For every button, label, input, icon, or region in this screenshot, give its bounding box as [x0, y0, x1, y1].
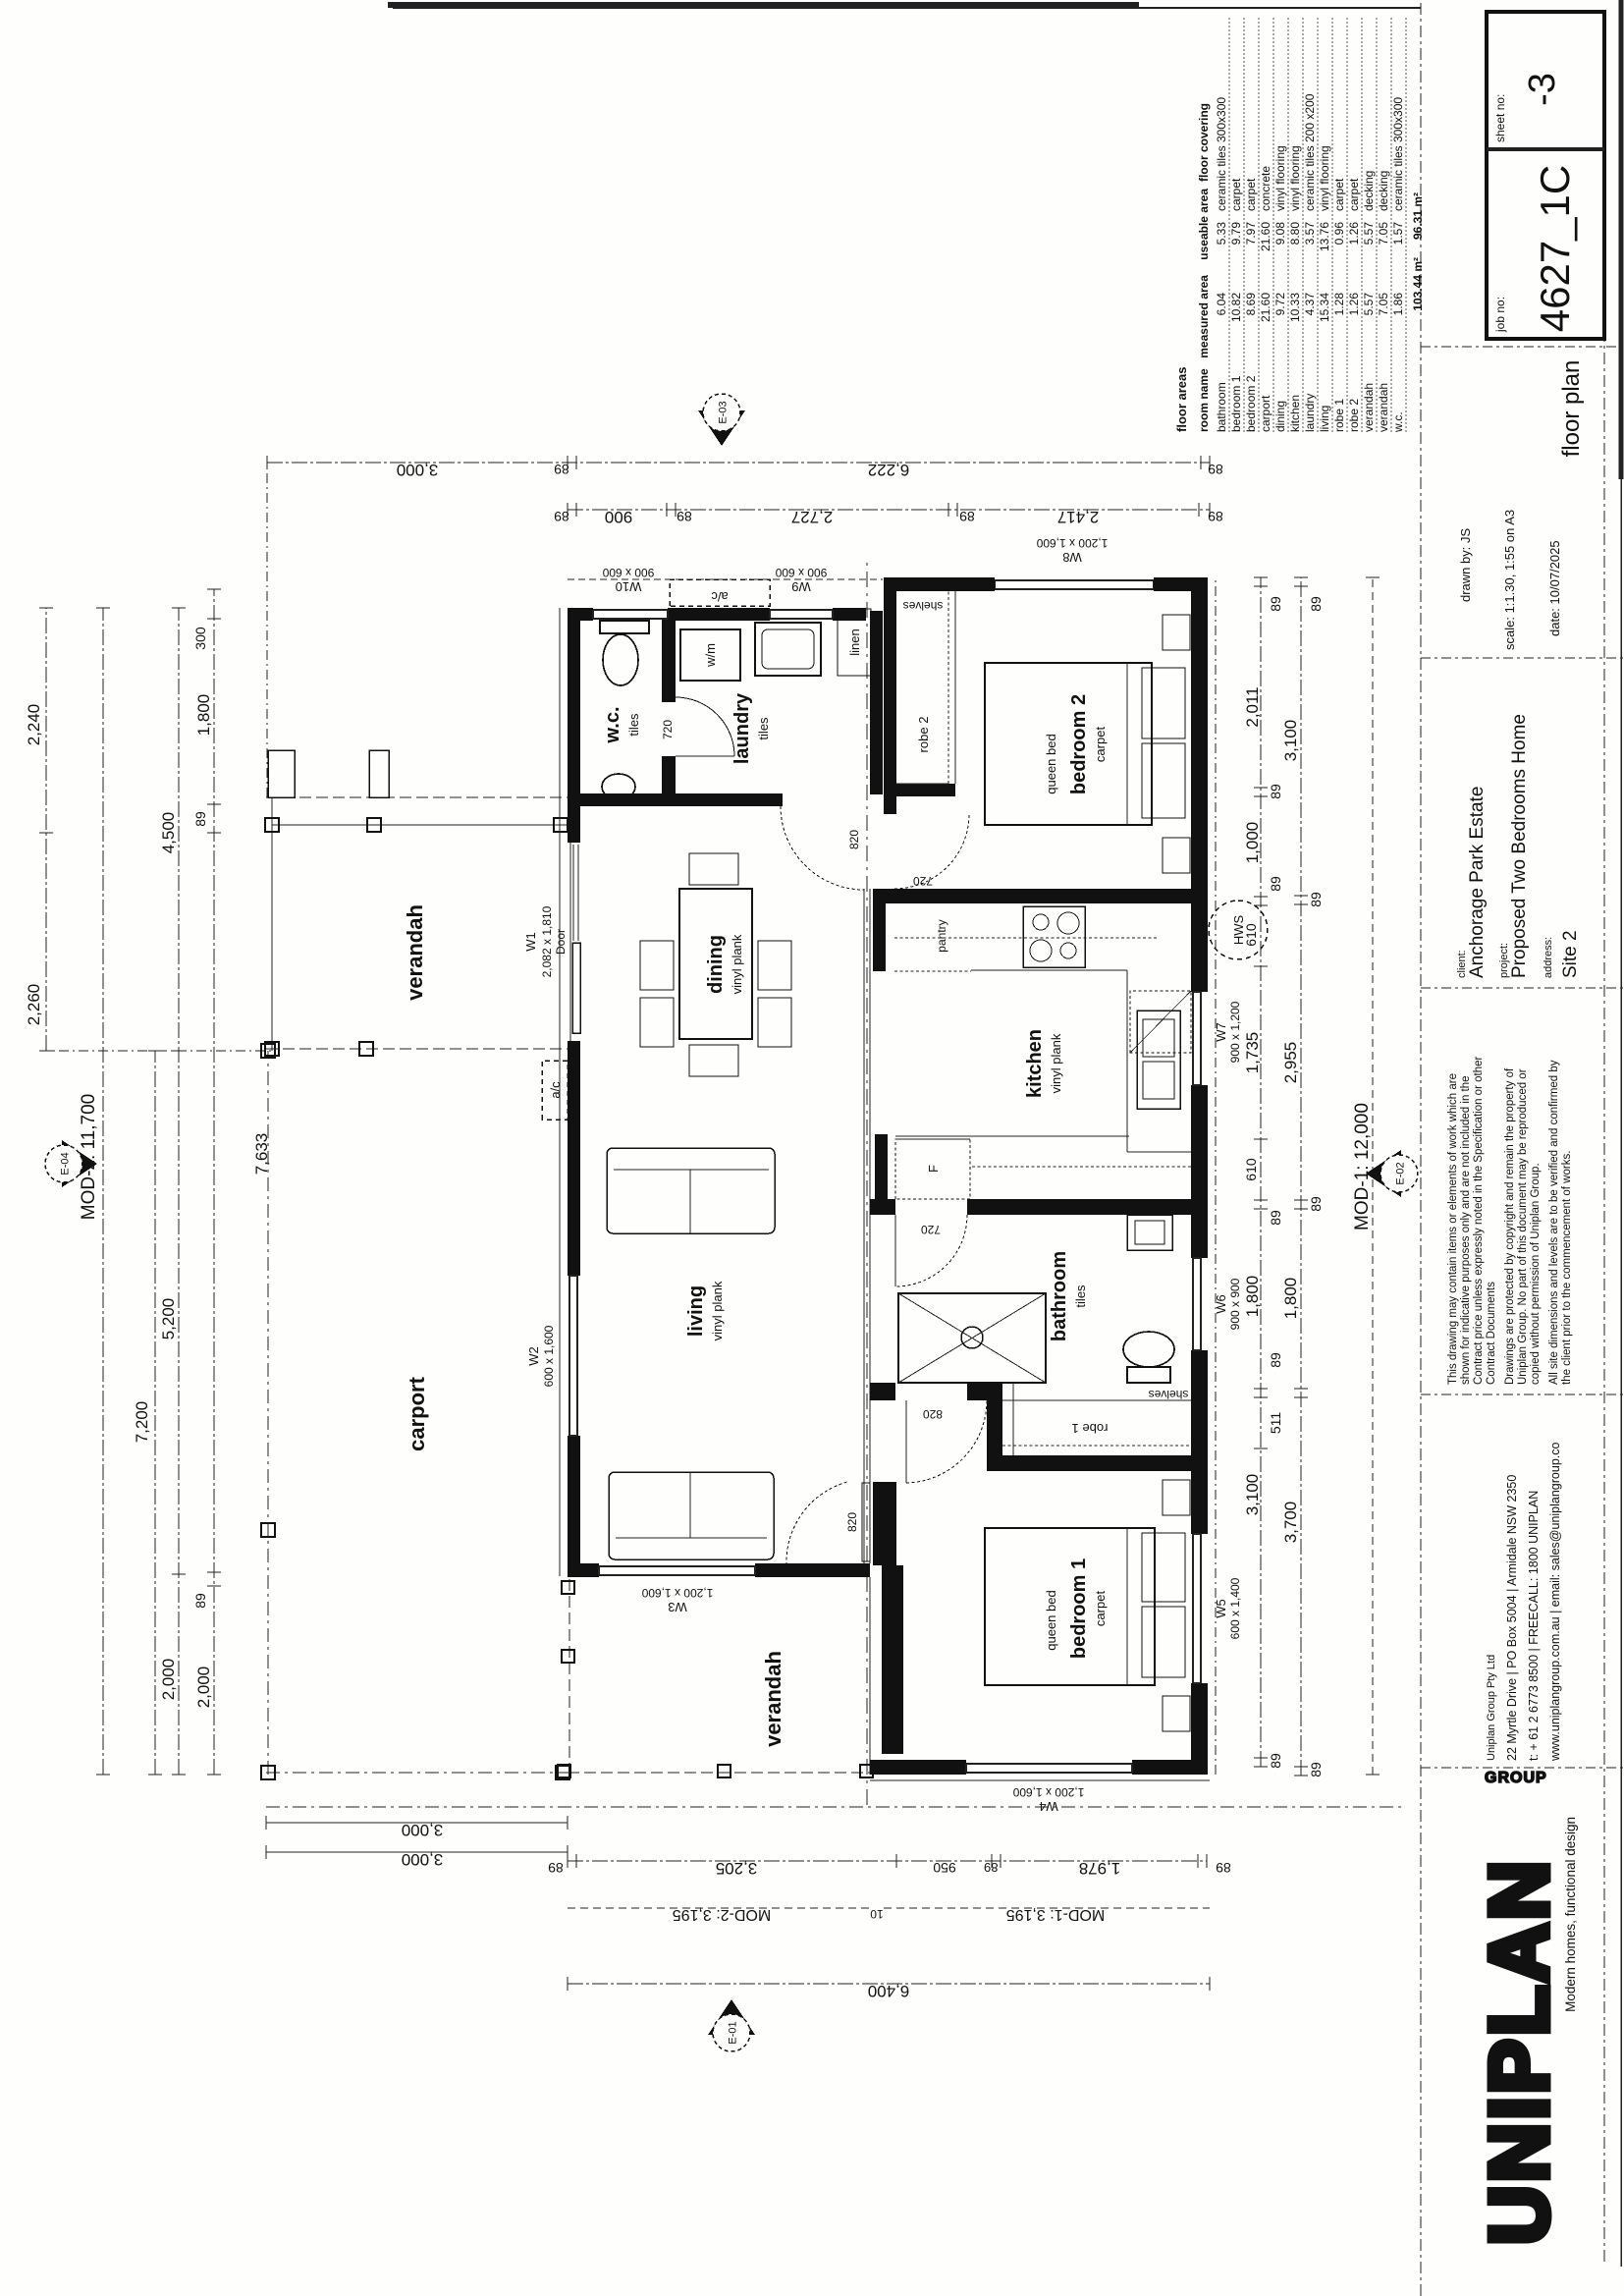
svg-text:5,200: 5,200 [159, 1298, 178, 1340]
svg-text:900 x 600: 900 x 600 [602, 566, 654, 579]
svg-text:Door: Door [554, 929, 568, 955]
svg-text:a/c: a/c [711, 589, 729, 604]
svg-text:89: 89 [1268, 876, 1283, 892]
svg-text:9.72: 9.72 [1273, 293, 1287, 316]
svg-text:carpet: carpet [1093, 727, 1108, 763]
svg-text:15.34: 15.34 [1318, 293, 1331, 322]
svg-text:the client prior to the commen: the client prior to the commencement of … [1561, 1151, 1573, 1385]
svg-text:89: 89 [1268, 596, 1283, 612]
svg-text:720: 720 [913, 874, 933, 888]
svg-text:W3: W3 [668, 1600, 687, 1614]
svg-text:floor plan: floor plan [1558, 360, 1585, 458]
svg-text:This drawing may contain items: This drawing may contain items or elemen… [1447, 1073, 1459, 1385]
svg-text:2,727: 2,727 [791, 508, 834, 526]
svg-text:w/m: w/m [703, 643, 718, 668]
svg-text:bedroom 2: bedroom 2 [1244, 375, 1258, 432]
svg-text:3,100: 3,100 [1281, 720, 1300, 762]
svg-text:1.26: 1.26 [1347, 222, 1361, 246]
svg-text:3,000: 3,000 [397, 461, 439, 479]
svg-text:1.26: 1.26 [1347, 293, 1361, 316]
svg-text:shown for indicative purposes: shown for indicative purposes only and a… [1460, 1075, 1472, 1385]
svg-text:1.57: 1.57 [1391, 222, 1405, 246]
svg-text:carpet: carpet [1244, 178, 1258, 211]
svg-text:laundry: laundry [731, 692, 753, 764]
svg-text:F: F [926, 1165, 941, 1173]
svg-text:tiles: tiles [756, 717, 771, 740]
svg-text:4627_1C: 4627_1C [1532, 165, 1578, 332]
svg-text:7.05: 7.05 [1377, 222, 1390, 246]
svg-text:sheet no:: sheet no: [1493, 94, 1507, 142]
svg-text:ceramic tiles 200 x200: ceramic tiles 200 x200 [1303, 93, 1317, 211]
svg-text:8.69: 8.69 [1244, 293, 1258, 316]
svg-text:HWS: HWS [1231, 915, 1246, 946]
svg-text:89: 89 [1268, 1753, 1283, 1769]
svg-text:89: 89 [1268, 784, 1283, 799]
svg-text:measured area: measured area [1197, 275, 1211, 358]
svg-text:concrete: concrete [1259, 166, 1272, 211]
svg-text:89: 89 [677, 509, 692, 524]
svg-text:robe 1: robe 1 [1332, 399, 1346, 432]
svg-text:820: 820 [923, 1407, 943, 1421]
svg-text:89: 89 [984, 1860, 998, 1875]
svg-text:bedroom 2: bedroom 2 [1068, 694, 1090, 794]
svg-text:2,417: 2,417 [1057, 508, 1100, 526]
svg-text:89: 89 [1208, 462, 1223, 477]
svg-text:vinyl plank: vinyl plank [730, 934, 744, 994]
svg-text:Contract Documents: Contract Documents [1486, 1282, 1497, 1385]
svg-text:1.86: 1.86 [1391, 293, 1405, 316]
svg-text:scale: 1:1.30, 1:55 on A3: scale: 1:1.30, 1:55 on A3 [1502, 510, 1517, 650]
svg-text:4,500: 4,500 [159, 812, 178, 854]
svg-text:3,000: 3,000 [402, 1850, 444, 1869]
svg-text:6,222: 6,222 [868, 461, 910, 479]
svg-text:89: 89 [959, 509, 975, 524]
svg-text:89: 89 [1308, 1762, 1324, 1777]
svg-text:Uniplan Group. No part of this: Uniplan Group. No part of this document … [1517, 1068, 1529, 1385]
svg-text:job no:: job no: [1493, 297, 1507, 333]
svg-text:1,200 x 1,600: 1,200 x 1,600 [1036, 536, 1108, 550]
svg-text:10.82: 10.82 [1229, 293, 1243, 322]
svg-text:Site 2: Site 2 [1560, 930, 1581, 978]
svg-text:96.31 m²: 96.31 m² [1411, 192, 1425, 240]
svg-text:vinyl plank: vinyl plank [710, 1281, 725, 1340]
svg-text:1,000: 1,000 [1243, 822, 1262, 864]
svg-text:living: living [1318, 406, 1331, 432]
svg-text:89: 89 [1308, 1196, 1324, 1212]
svg-text:89: 89 [192, 811, 208, 827]
svg-text:E-04: E-04 [60, 1152, 72, 1175]
svg-text:Drawings are protected by copy: Drawings are protected by copyright and … [1504, 1067, 1516, 1385]
svg-text:ceramic tiles 300x300: ceramic tiles 300x300 [1391, 97, 1405, 211]
svg-text:2,011: 2,011 [1243, 686, 1262, 727]
svg-text:7,200: 7,200 [133, 1401, 151, 1444]
svg-text:7.97: 7.97 [1244, 222, 1258, 246]
svg-text:queen bed: queen bed [1044, 1590, 1058, 1650]
svg-text:UNIPLAN: UNIPLAN [1473, 1858, 1565, 2245]
svg-text:900 x 600: 900 x 600 [775, 566, 827, 579]
svg-text:www.uniplangroup.com.au | emai: www.uniplangroup.com.au | email: sales@u… [1548, 1443, 1562, 1762]
svg-text:900: 900 [605, 508, 632, 526]
svg-text:1,800: 1,800 [1281, 1278, 1300, 1320]
svg-text:9.08: 9.08 [1273, 222, 1287, 246]
svg-text:w.c.: w.c. [1391, 411, 1405, 433]
svg-text:5.57: 5.57 [1362, 222, 1376, 246]
svg-text:6.04: 6.04 [1215, 293, 1228, 316]
svg-text:3,000: 3,000 [402, 1821, 444, 1839]
svg-text:vinyl flooring: vinyl flooring [1318, 145, 1331, 211]
svg-text:GROUP: GROUP [1485, 1770, 1547, 1786]
svg-text:drawn by: JS: drawn by: JS [1458, 528, 1473, 602]
svg-text:W2: W2 [526, 1346, 541, 1366]
svg-text:kitchen: kitchen [1024, 1029, 1046, 1098]
svg-text:bathroom: bathroom [1215, 382, 1228, 432]
svg-text:89: 89 [1208, 509, 1223, 524]
svg-text:89: 89 [548, 1860, 564, 1876]
svg-text:tiles: tiles [626, 713, 641, 737]
svg-text:w.c.: w.c. [602, 706, 623, 743]
svg-text:MOD-1: 3,195: MOD-1: 3,195 [1006, 1906, 1106, 1923]
svg-text:carpet: carpet [1229, 178, 1243, 211]
svg-text:300: 300 [192, 627, 208, 650]
svg-text:verandah: verandah [1362, 383, 1376, 432]
svg-text:decking: decking [1362, 171, 1376, 211]
svg-text:robe 1: robe 1 [1072, 1421, 1109, 1436]
svg-text:2,082 x 1,810: 2,082 x 1,810 [540, 905, 554, 977]
svg-text:bedroom 1: bedroom 1 [1068, 1558, 1090, 1659]
svg-text:13.76: 13.76 [1318, 222, 1331, 251]
svg-text:floor areas: floor areas [1174, 367, 1189, 432]
svg-text:carpet: carpet [1332, 178, 1346, 211]
svg-text:Proposed Two Bedrooms Home: Proposed Two Bedrooms Home [1509, 714, 1530, 978]
svg-text:carpet: carpet [1093, 1591, 1108, 1627]
svg-text:shelves: shelves [903, 599, 944, 613]
svg-text:W4: W4 [1039, 1799, 1058, 1814]
svg-text:89: 89 [1308, 892, 1324, 907]
svg-text:vinyl plank: vinyl plank [1049, 1033, 1063, 1093]
svg-text:robe 2: robe 2 [916, 717, 931, 753]
svg-text:W10: W10 [616, 579, 642, 594]
svg-text:vinyl flooring: vinyl flooring [1273, 145, 1287, 211]
svg-text:linen: linen [847, 629, 862, 655]
svg-text:shelves: shelves [1149, 1388, 1189, 1401]
svg-text:E-02: E-02 [1395, 1162, 1407, 1184]
svg-text:7.05: 7.05 [1377, 293, 1390, 316]
svg-text:W1: W1 [523, 932, 538, 952]
svg-text:carport: carport [1259, 395, 1272, 432]
svg-text:8.80: 8.80 [1288, 222, 1302, 246]
svg-text:All site dimensions and levels: All site dimensions and levels are to be… [1548, 1060, 1560, 1385]
svg-text:103.44 m²: 103.44 m² [1411, 257, 1425, 311]
svg-text:address:: address: [1543, 937, 1554, 978]
svg-text:1.28: 1.28 [1332, 293, 1346, 316]
svg-text:3,205: 3,205 [716, 1859, 758, 1878]
svg-text:89: 89 [1216, 1860, 1231, 1876]
svg-text:3.57: 3.57 [1303, 222, 1317, 246]
svg-text:W9: W9 [791, 579, 811, 594]
svg-text:floor covering: floor covering [1197, 103, 1211, 182]
svg-text:Uniplan Group Pty Ltd: Uniplan Group Pty Ltd [1486, 1655, 1497, 1761]
svg-text:useable area: useable area [1197, 189, 1211, 260]
svg-text:10: 10 [870, 1907, 884, 1921]
svg-text:Anchorage Park Estate: Anchorage Park Estate [1467, 787, 1488, 978]
svg-text:living: living [685, 1285, 707, 1337]
svg-text:89: 89 [1308, 596, 1324, 612]
svg-text:9.79: 9.79 [1229, 222, 1243, 246]
svg-text:dining: dining [1273, 401, 1287, 432]
svg-text:610: 610 [1243, 1158, 1259, 1181]
svg-text:5.33: 5.33 [1215, 222, 1228, 246]
svg-text:MOD-1: 12,000: MOD-1: 12,000 [1352, 1103, 1373, 1230]
svg-text:tiles: tiles [1073, 1285, 1088, 1308]
svg-text:decking: decking [1377, 171, 1390, 211]
svg-text:verandah: verandah [761, 1651, 785, 1747]
svg-text:21.60: 21.60 [1259, 293, 1272, 322]
svg-text:600 x 1,400: 600 x 1,400 [1228, 1577, 1242, 1639]
svg-text:21.60: 21.60 [1259, 222, 1272, 251]
svg-text:E-03: E-03 [718, 401, 730, 423]
svg-text:a/c: a/c [548, 1081, 563, 1099]
svg-text:pantry: pantry [935, 919, 948, 952]
svg-text:copied without permission of U: copied without permission of Uniplan Gro… [1530, 1163, 1542, 1385]
svg-text:2,000: 2,000 [159, 1659, 178, 1701]
svg-text:1,200 x 1,600: 1,200 x 1,600 [641, 1586, 713, 1600]
svg-text:dining: dining [705, 935, 727, 994]
svg-text:robe 2: robe 2 [1347, 399, 1361, 432]
svg-text:date: 10/07/2025: date: 10/07/2025 [1547, 540, 1562, 636]
svg-text:ceramic tiles 300x300: ceramic tiles 300x300 [1215, 97, 1228, 211]
svg-text:4.37: 4.37 [1303, 293, 1317, 316]
svg-text:1,800: 1,800 [1243, 1276, 1262, 1318]
svg-text:900 x 1,200: 900 x 1,200 [1228, 1001, 1242, 1063]
svg-text:820: 820 [847, 830, 861, 849]
svg-text:2,000: 2,000 [194, 1667, 213, 1709]
svg-text:Modern homes, functional desig: Modern homes, functional design [1563, 1817, 1578, 2012]
svg-text:carport: carport [405, 1376, 429, 1450]
svg-text:laundry: laundry [1303, 394, 1317, 432]
svg-text:0.96: 0.96 [1332, 222, 1346, 246]
svg-text:bathroom: bathroom [1049, 1251, 1070, 1341]
svg-text:bedroom 1: bedroom 1 [1229, 375, 1243, 432]
svg-text:1,735: 1,735 [1243, 1032, 1262, 1074]
svg-text:2,240: 2,240 [25, 704, 43, 746]
svg-text:6,400: 6,400 [868, 1982, 910, 2000]
svg-text:89: 89 [554, 462, 569, 477]
svg-text:t: + 61 2 6773 8500 | FREECALL: t: + 61 2 6773 8500 | FREECALL: 1800 UNI… [1527, 1491, 1541, 1761]
svg-text:89: 89 [1268, 1210, 1283, 1226]
svg-text:1,800: 1,800 [194, 694, 213, 737]
svg-text:900 x 900: 900 x 900 [1228, 1278, 1242, 1330]
svg-text:820: 820 [845, 1512, 859, 1532]
svg-text:720: 720 [921, 1223, 941, 1236]
svg-text:kitchen: kitchen [1288, 395, 1302, 432]
svg-text:22 Myrtle Drive | PO Box 5004: 22 Myrtle Drive | PO Box 5004 | Armidale… [1505, 1475, 1519, 1761]
svg-text:MOD-2: 3,195: MOD-2: 3,195 [673, 1906, 772, 1923]
svg-text:W8: W8 [1062, 550, 1082, 565]
svg-text:950: 950 [933, 1860, 956, 1876]
svg-text:600 x 1,600: 600 x 1,600 [542, 1325, 556, 1387]
svg-text:720: 720 [661, 720, 675, 739]
svg-text:verandah: verandah [403, 904, 427, 1001]
svg-text:queen bed: queen bed [1044, 734, 1058, 793]
svg-text:89: 89 [192, 1593, 208, 1609]
svg-text:2,955: 2,955 [1281, 1042, 1300, 1084]
svg-text:1,978: 1,978 [1079, 1859, 1121, 1878]
svg-text:-3: -3 [1522, 73, 1563, 106]
svg-text:5.57: 5.57 [1362, 293, 1376, 316]
svg-text:E-01: E-01 [728, 2021, 739, 2044]
svg-text:verandah: verandah [1377, 383, 1390, 432]
svg-text:89: 89 [554, 509, 569, 524]
svg-text:89: 89 [1268, 1352, 1283, 1368]
svg-text:10.33: 10.33 [1288, 293, 1302, 322]
svg-text:Contract price unless expressl: Contract price unless expressly noted in… [1473, 1057, 1485, 1385]
svg-text:2,260: 2,260 [25, 984, 43, 1026]
svg-text:room name: room name [1197, 368, 1211, 432]
svg-text:3,100: 3,100 [1243, 1474, 1262, 1516]
svg-text:carpet: carpet [1347, 178, 1361, 211]
svg-text:1,200 x 1,600: 1,200 x 1,600 [1012, 1785, 1084, 1799]
svg-text:511: 511 [1268, 1412, 1283, 1435]
svg-text:vinyl flooring: vinyl flooring [1288, 145, 1302, 211]
svg-text:3,700: 3,700 [1281, 1502, 1300, 1544]
